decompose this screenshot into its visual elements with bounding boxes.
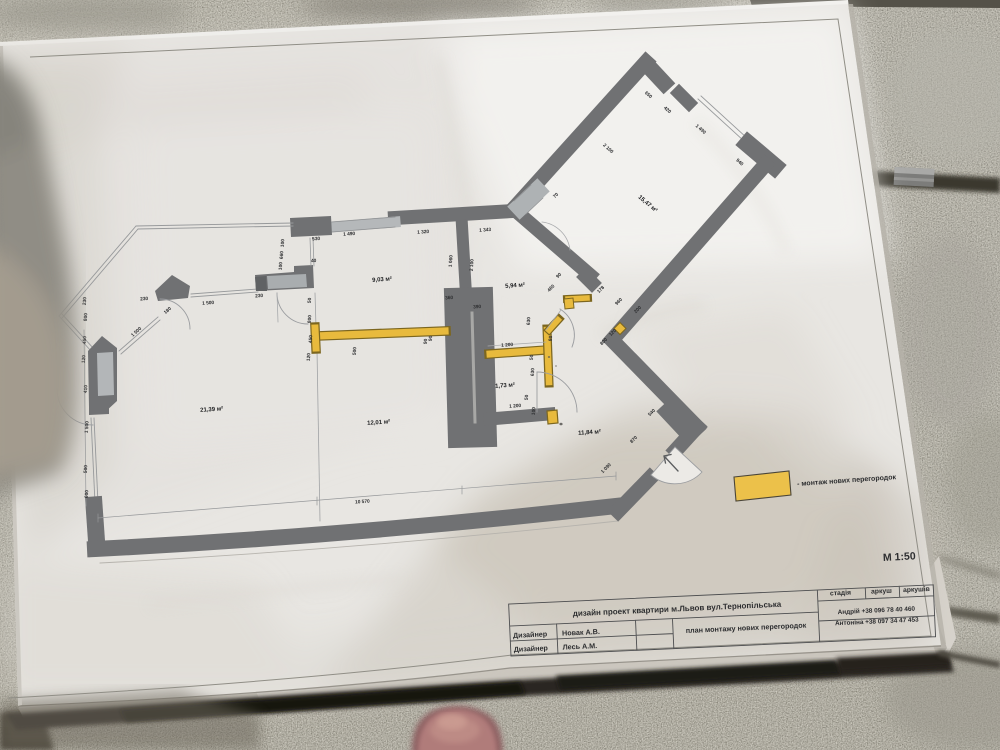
svg-text:Дизайнер: Дизайнер bbox=[513, 629, 548, 640]
svg-text:стадія: стадія bbox=[830, 589, 851, 598]
svg-text:230: 230 bbox=[140, 296, 149, 303]
svg-text:90: 90 bbox=[428, 335, 434, 341]
svg-text:100: 100 bbox=[278, 262, 285, 271]
svg-text:450: 450 bbox=[308, 335, 315, 344]
svg-text:600: 600 bbox=[84, 490, 91, 499]
svg-text:М 1:50: М 1:50 bbox=[883, 550, 916, 564]
svg-text:1 500: 1 500 bbox=[202, 300, 215, 307]
svg-text:1 500: 1 500 bbox=[84, 421, 91, 434]
svg-text:1 200: 1 200 bbox=[501, 342, 514, 349]
svg-text:230: 230 bbox=[82, 297, 89, 306]
svg-text:100: 100 bbox=[280, 239, 287, 248]
svg-text:10 570: 10 570 bbox=[355, 499, 370, 506]
svg-text:1,73 м²: 1,73 м² bbox=[495, 381, 515, 389]
svg-text:630: 630 bbox=[530, 368, 537, 377]
svg-text:1 200: 1 200 bbox=[509, 403, 522, 410]
svg-text:аркуш: аркуш bbox=[871, 588, 892, 596]
svg-text:1 490: 1 490 bbox=[343, 231, 356, 238]
svg-text:Лесь А.М.: Лесь А.М. bbox=[562, 641, 597, 652]
svg-text:Новак А.В.: Новак А.В. bbox=[562, 627, 600, 638]
svg-text:390: 390 bbox=[473, 304, 482, 311]
svg-text:630: 630 bbox=[526, 317, 533, 326]
svg-text:800: 800 bbox=[83, 313, 90, 322]
svg-text:аркушів: аркушів bbox=[903, 585, 930, 594]
svg-text:230: 230 bbox=[255, 293, 264, 300]
svg-text:1 320: 1 320 bbox=[417, 229, 430, 236]
svg-text:500: 500 bbox=[352, 347, 359, 356]
svg-text:800: 800 bbox=[307, 315, 314, 324]
svg-text:410: 410 bbox=[83, 385, 90, 394]
svg-text:100: 100 bbox=[531, 407, 538, 416]
svg-text:450: 450 bbox=[82, 336, 89, 345]
svg-text:120: 120 bbox=[81, 355, 88, 364]
svg-text:360: 360 bbox=[445, 295, 454, 302]
svg-text:50: 50 bbox=[529, 354, 535, 360]
svg-text:50: 50 bbox=[524, 394, 530, 400]
svg-text:120: 120 bbox=[306, 353, 313, 362]
svg-text:5,94 м²: 5,94 м² bbox=[505, 281, 525, 289]
svg-text:660: 660 bbox=[279, 251, 286, 260]
svg-text:530: 530 bbox=[312, 236, 321, 243]
svg-text:1 343: 1 343 bbox=[479, 227, 492, 234]
svg-text:50: 50 bbox=[307, 297, 313, 303]
svg-text:1 060: 1 060 bbox=[448, 255, 455, 268]
svg-text:500: 500 bbox=[83, 465, 90, 474]
svg-text:Дизайнер: Дизайнер bbox=[513, 643, 548, 654]
svg-text:9,03 м²: 9,03 м² bbox=[372, 275, 392, 283]
svg-text:2 100: 2 100 bbox=[469, 259, 476, 272]
svg-text:40: 40 bbox=[311, 258, 317, 264]
svg-text:80: 80 bbox=[548, 335, 554, 341]
